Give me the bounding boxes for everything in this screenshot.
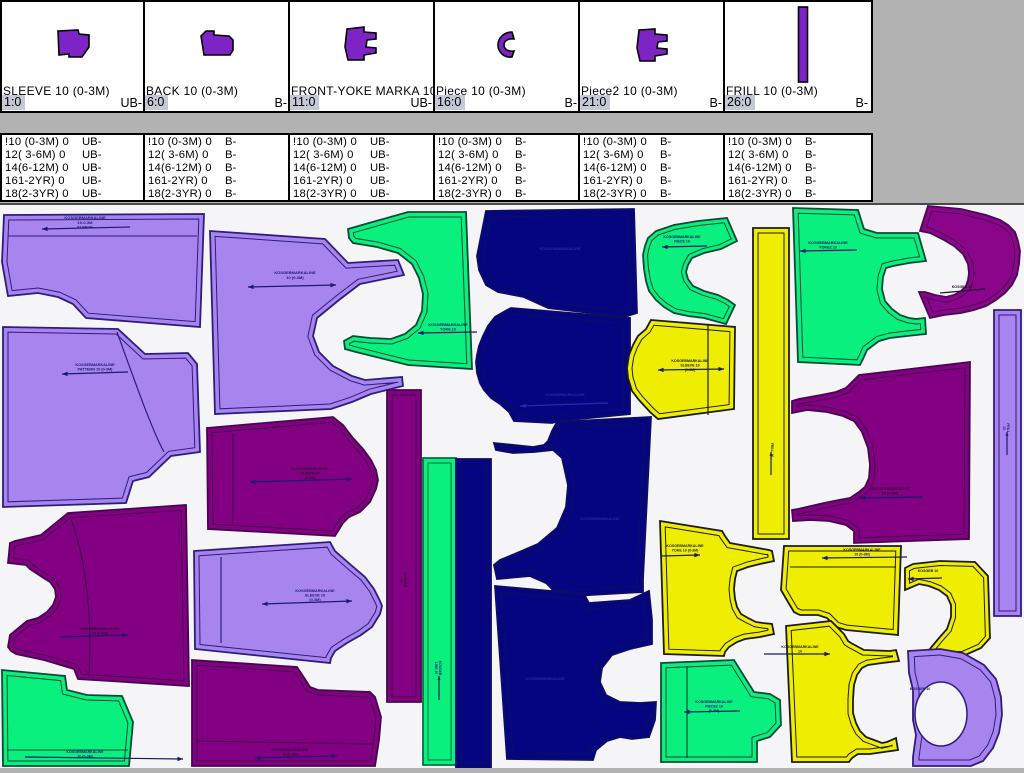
svg-text:SLEEVE 10: SLEEVE 10 [305,594,325,598]
svg-text:PIECE 10: PIECE 10 [674,239,690,243]
svg-text:KOSGEBMARKALINE: KOSGEBMARKALINE [671,359,709,363]
svg-text:YOKE2 10: YOKE2 10 [819,246,837,250]
svg-text:10: 10 [798,649,802,653]
svg-text:KOSGEBMARKALINE: KOSGEBMARKALINE [75,363,115,367]
svg-text:10 (0-3M): 10 (0-3M) [286,275,304,280]
svg-text:KOSGEBMARKALINE: KOSGEBMARKALINE [580,517,620,521]
svg-text:10 (0-3M): 10 (0-3M) [282,752,298,756]
svg-text:KOSGEBMARKALINE: KOSGEBMARKALINE [663,235,701,239]
svg-text:10 (0-3M): 10 (0-3M) [854,552,870,556]
svg-text:KOSGEBMARKALINE: KOSGEBMARKALINE [781,645,819,649]
svg-text:KOSGEBMARKALINE: KOSGEBMARKALINE [525,677,565,681]
svg-text:KOSGEBMARKALINE: KOSGEBMARKALINE [666,544,704,548]
svg-text:KOSGEBMARKALINE: KOSGEBMARKALINE [66,750,104,754]
svg-text:KOSGEBMARKALINE: KOSGEBMARKALINE [271,748,309,752]
svg-text:(0-3M): (0-3M) [309,598,321,602]
svg-text:SLEEVE 10: SLEEVE 10 [300,471,319,475]
svg-text:KOSGEBMARKALINE: KOSGEBMARKALINE [843,548,881,552]
svg-text:(0-3M): (0-3M) [709,709,720,713]
svg-text:PATTERN 10 (0-3M): PATTERN 10 (0-3M) [78,368,114,372]
svg-text:(0-3M): (0-3M) [685,368,696,372]
svg-text:YOKE 10: YOKE 10 [440,328,456,332]
svg-text:KOSGEBMARKALINE: KOSGEBMARKALINE [870,487,910,491]
svg-text:KOSGEBMARKALINE: KOSGEBMARKALINE [80,627,120,631]
svg-text:KOSGEBMARKALINE: KOSGEBMARKALINE [539,246,581,251]
svg-text:10: 10 [1002,426,1006,430]
svg-text:KOSGEBMARKALINE: KOSGEBMARKALINE [808,241,848,245]
svg-text:KOSGEBMARKALINE: KOSGEBMARKALINE [291,467,329,471]
svg-text:KOSGEBMARKALINE: KOSGEBMARKALINE [695,700,733,704]
svg-text:KOSGEB 10: KOSGEB 10 [910,687,931,691]
svg-text:LINE 10: LINE 10 [434,662,438,675]
svg-text:KOSGEBMARKALINE: KOSGEBMARKALINE [428,323,468,327]
svg-text:KOSGEBMARKALINE: KOSGEBMARKALINE [545,393,585,397]
svg-text:10 (0-3M): 10 (0-3M) [882,492,899,496]
svg-text:KOSGEB 10: KOSGEB 10 [952,285,973,289]
svg-text:(0-3M): (0-3M) [305,476,316,480]
svg-text:10: 10 [399,578,403,582]
svg-text:PIECE2 10: PIECE2 10 [705,704,723,708]
svg-text:SLEEVE 10: SLEEVE 10 [680,363,699,367]
svg-text:KOSGEBMARKALINE: KOSGEBMARKALINE [295,589,335,593]
svg-text:10 (0-3M): 10 (0-3M) [92,632,109,636]
svg-text:KOSGEB 10: KOSGEB 10 [918,569,939,573]
svg-text:SLEEVE: SLEEVE [77,225,93,230]
svg-text:10 (0-3M): 10 (0-3M) [77,754,93,758]
svg-text:YOKE 10 (0-3M): YOKE 10 (0-3M) [672,548,700,552]
